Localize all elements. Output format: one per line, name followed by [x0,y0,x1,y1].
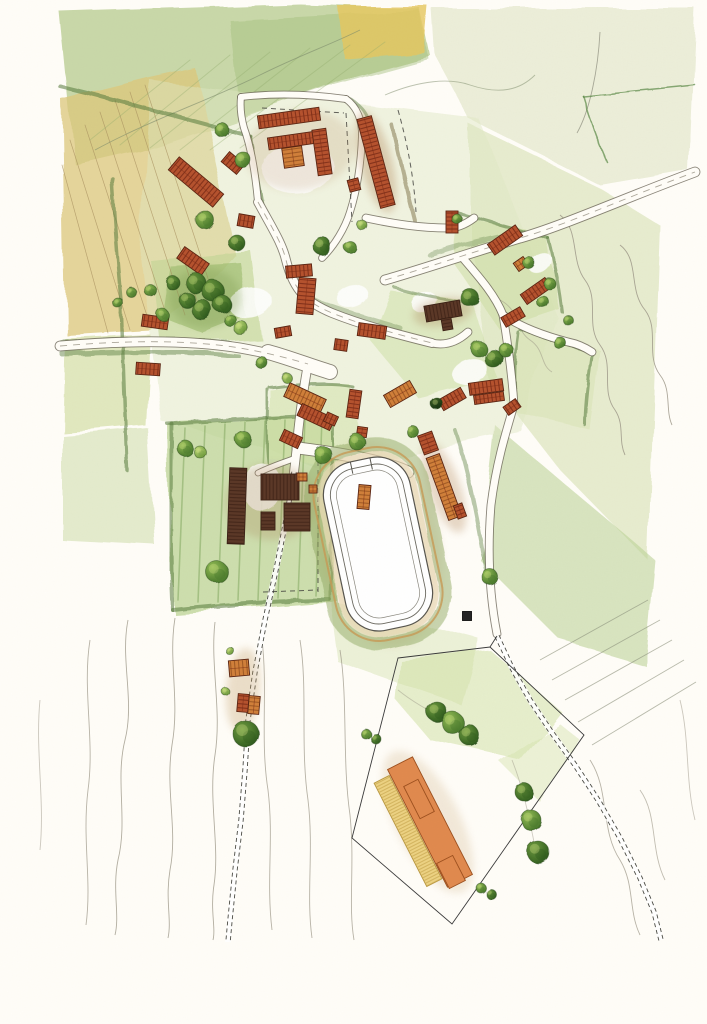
paper-grain [0,0,707,1024]
masterplan-drawing [0,0,707,1024]
village-masterplan-map [0,0,707,1024]
